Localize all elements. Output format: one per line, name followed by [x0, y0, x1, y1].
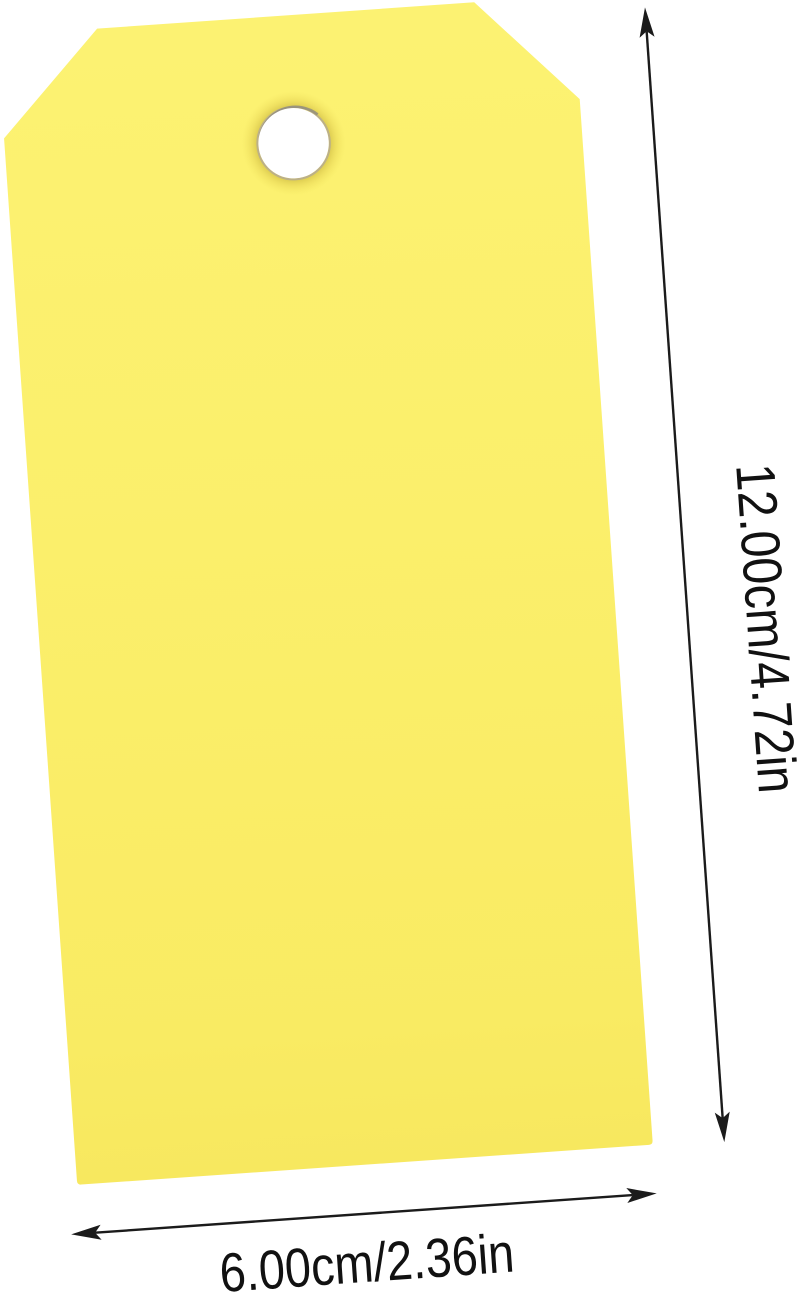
svg-text:12.00cm/4.72in: 12.00cm/4.72in: [724, 462, 800, 796]
svg-text:6.00cm/2.36in: 6.00cm/2.36in: [218, 1222, 517, 1294]
